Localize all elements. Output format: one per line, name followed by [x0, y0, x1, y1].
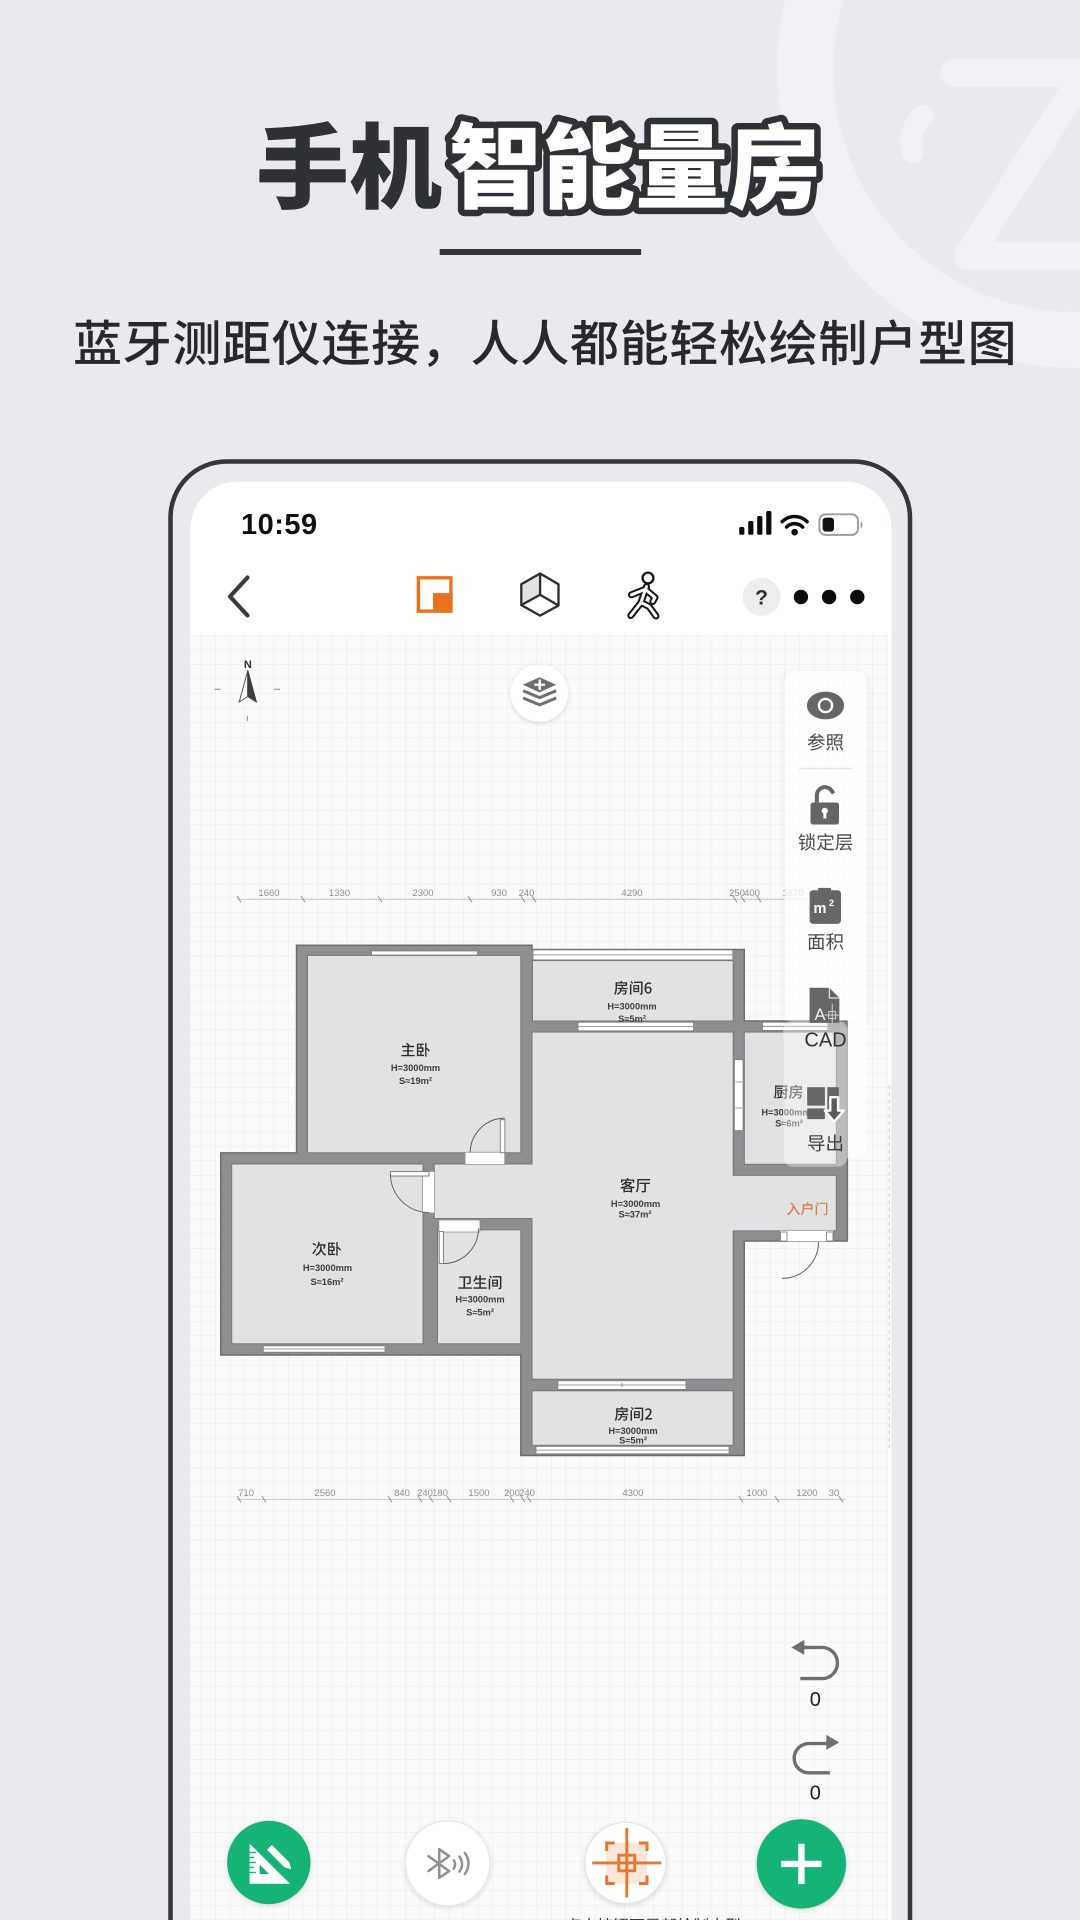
svg-text:240: 240: [417, 1488, 433, 1499]
svg-text:840: 840: [394, 1488, 410, 1499]
svg-text:H=3000mm: H=3000mm: [611, 1199, 660, 1209]
svg-text:240: 240: [519, 888, 535, 899]
svg-text:H=3000mm: H=3000mm: [607, 1002, 656, 1012]
svg-text:2560: 2560: [314, 1488, 335, 1499]
svg-text:30: 30: [829, 1488, 840, 1499]
svg-text:1200: 1200: [796, 1488, 817, 1499]
svg-text:S≈5m²: S≈5m²: [466, 1308, 494, 1318]
svg-text:1660: 1660: [258, 888, 279, 899]
svg-text:200: 200: [504, 1488, 520, 1499]
svg-text:S≈5m²: S≈5m²: [618, 1014, 646, 1024]
svg-text:S≈37m²: S≈37m²: [618, 1210, 651, 1220]
svg-text:0: 0: [810, 1783, 821, 1805]
svg-text:1500: 1500: [468, 1488, 489, 1499]
svg-text:m: m: [814, 901, 827, 917]
svg-text:4300: 4300: [622, 1488, 643, 1499]
svg-text:180: 180: [432, 1488, 448, 1499]
svg-text:CAD: CAD: [804, 1030, 846, 1052]
svg-text:S≈5m²: S≈5m²: [619, 1436, 647, 1446]
svg-text:H=3000mm: H=3000mm: [391, 1063, 440, 1073]
svg-text:0: 0: [810, 1689, 821, 1711]
svg-text:N: N: [244, 659, 252, 671]
svg-text:4290: 4290: [621, 888, 642, 899]
svg-text:?: ?: [755, 587, 768, 610]
svg-text:710: 710: [238, 1488, 254, 1499]
svg-text:1000: 1000: [746, 1488, 767, 1499]
svg-text:250: 250: [729, 888, 745, 899]
svg-text:A: A: [814, 1006, 825, 1024]
svg-text:2: 2: [829, 898, 834, 908]
svg-text:930: 930: [491, 888, 507, 899]
svg-text:H=3000mm: H=3000mm: [608, 1426, 657, 1436]
svg-text:H=3000mm: H=3000mm: [303, 1263, 352, 1273]
svg-text:2300: 2300: [412, 888, 433, 899]
svg-text:H=3000mm: H=3000mm: [455, 1295, 504, 1305]
svg-text:S≈19m²: S≈19m²: [399, 1076, 432, 1086]
svg-text:400: 400: [744, 888, 760, 899]
svg-text:240: 240: [519, 1488, 535, 1499]
svg-text:10:59: 10:59: [241, 509, 318, 541]
svg-text:1330: 1330: [329, 888, 350, 899]
svg-text:S≈16m²: S≈16m²: [310, 1277, 343, 1287]
